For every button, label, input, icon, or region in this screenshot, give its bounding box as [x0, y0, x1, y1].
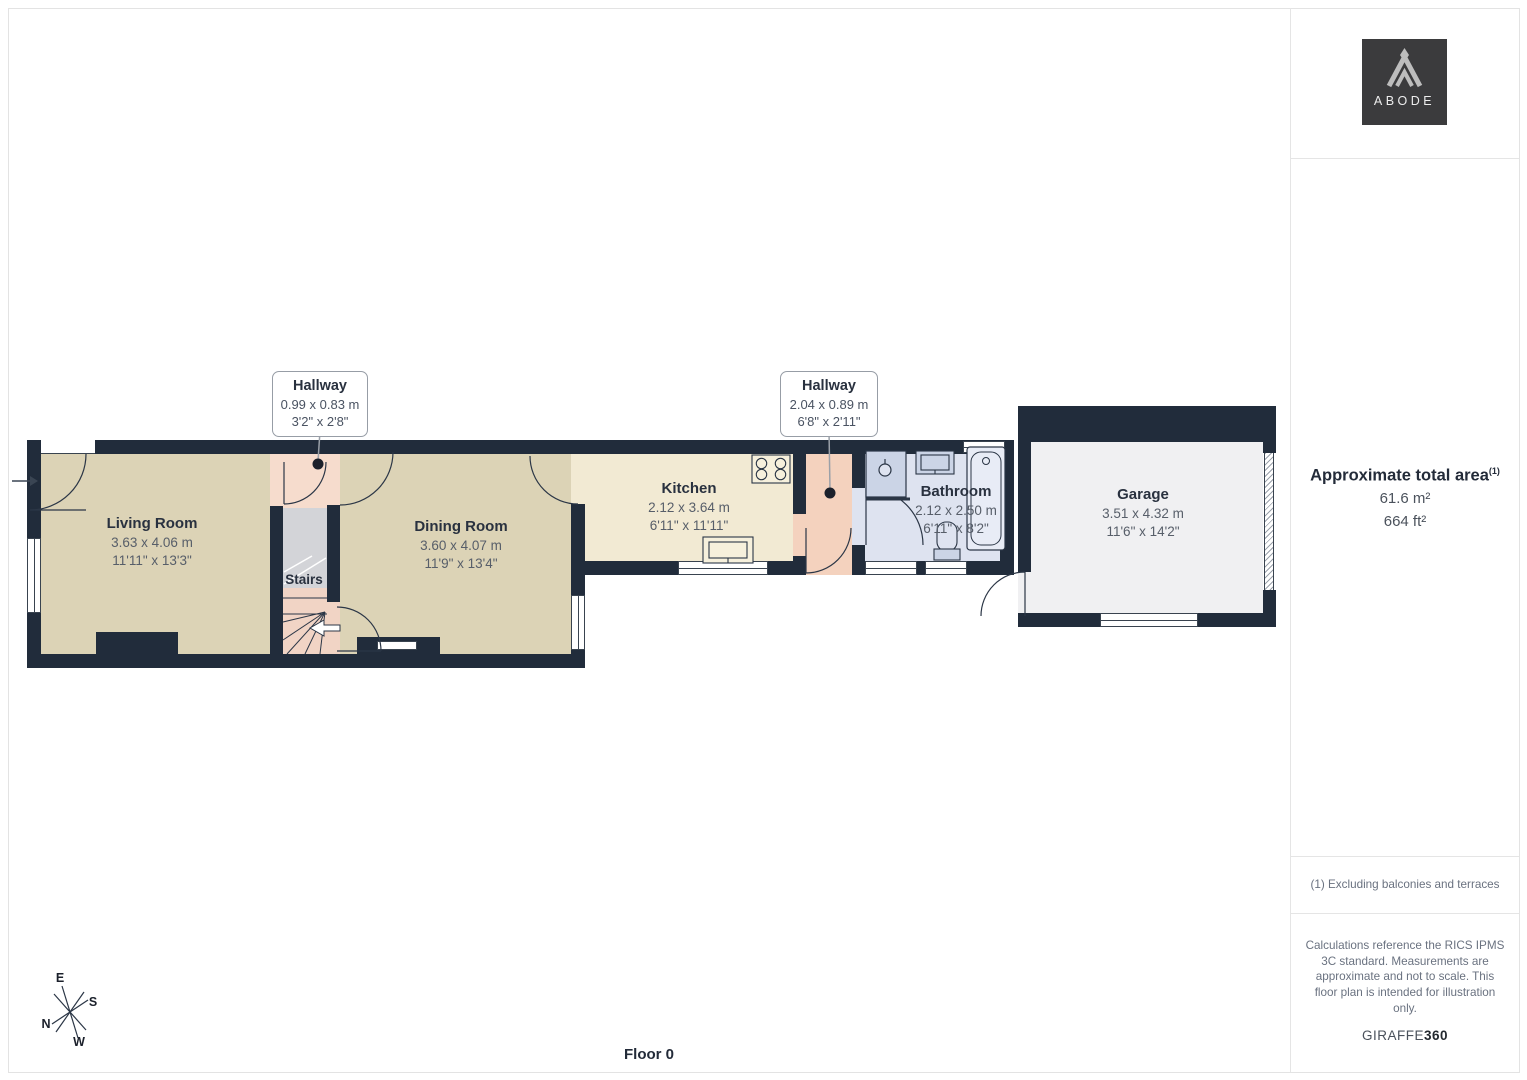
floor-label: Floor 0: [8, 1046, 1290, 1063]
area-footnote: (1) Excluding balconies and terraces: [1301, 877, 1509, 892]
giraffe360-brand: GIRAFFE360: [1291, 1028, 1519, 1043]
wall: [270, 506, 283, 654]
window: [925, 561, 967, 575]
wall: [1198, 613, 1276, 627]
wall: [27, 613, 41, 654]
wall: [793, 556, 806, 561]
window: [27, 538, 41, 613]
window: [963, 441, 1005, 453]
doorway: [793, 514, 806, 556]
wall: [27, 654, 585, 668]
divider: [1291, 856, 1519, 857]
wall: [1018, 613, 1100, 627]
wall: [793, 454, 806, 514]
abode-logo-icon: ABODE: [1362, 39, 1447, 125]
bathroom-label: Bathroom 2.12 x 2.50 m 6'11" x 8'2": [915, 482, 997, 538]
chimney-breast: [96, 632, 178, 654]
wall: [852, 454, 865, 488]
wall: [1000, 440, 1014, 575]
doorway: [270, 454, 283, 506]
stairs-floor: [283, 588, 327, 654]
window: [678, 561, 768, 575]
wall: [1018, 406, 1276, 442]
hallway1-callout: Hallway 0.99 x 0.83 m 3'2" x 2'8": [272, 371, 368, 437]
wall: [852, 561, 865, 575]
window: [1100, 613, 1198, 627]
doorway: [1018, 572, 1031, 615]
floorplan-page: E S N W Living Room 3.63 x 4.06 m 11'11"…: [0, 0, 1527, 1080]
fireplace-inset: [377, 641, 417, 650]
living-room-label: Living Room 3.63 x 4.06 m 11'11" x 13'3": [107, 514, 198, 570]
wall: [585, 440, 1014, 454]
disclaimer: Calculations reference the RICS IPMS 3C …: [1305, 938, 1505, 1017]
window: [571, 595, 585, 650]
hallway2-floor: [806, 454, 852, 575]
doorway: [327, 454, 340, 505]
hallway2-callout: Hallway 2.04 x 0.89 m 6'8" x 2'11": [780, 371, 878, 437]
wall: [571, 650, 585, 654]
area-summary: Approximate total area(1) 61.6 m² 664 ft…: [1291, 460, 1519, 533]
garage-label: Garage 3.51 x 4.32 m 11'6" x 14'2": [1102, 485, 1184, 541]
kitchen-label: Kitchen 2.12 x 3.64 m 6'11" x 11'11": [648, 479, 730, 535]
entrance-opening: [41, 440, 95, 454]
wall: [327, 505, 340, 602]
wall: [1018, 442, 1031, 572]
abode-logo-text: ABODE: [1374, 94, 1435, 108]
wall: [852, 545, 865, 561]
hallway1-floor: [283, 454, 327, 508]
area-imperial: 664 ft²: [1291, 510, 1519, 533]
wall: [917, 561, 925, 575]
area-metric: 61.6 m²: [1291, 487, 1519, 510]
divider: [1291, 158, 1519, 159]
divider: [1291, 913, 1519, 914]
dining-room-label: Dining Room 3.60 x 4.07 m 11'9" x 13'4": [414, 517, 507, 573]
doorway: [852, 488, 865, 545]
garage-door: [1264, 453, 1274, 590]
wall: [95, 440, 585, 454]
wall: [1263, 442, 1276, 453]
stairs-label: Stairs: [285, 572, 323, 587]
wall: [585, 561, 678, 575]
wall: [27, 454, 41, 538]
abode-logo: ABODE: [1362, 39, 1447, 125]
wall: [27, 440, 41, 454]
doorway: [327, 602, 340, 654]
window: [865, 561, 917, 575]
wall: [768, 561, 806, 575]
doorway: [571, 454, 585, 504]
area-title: Approximate total area(1): [1291, 460, 1519, 487]
wall: [571, 504, 585, 595]
